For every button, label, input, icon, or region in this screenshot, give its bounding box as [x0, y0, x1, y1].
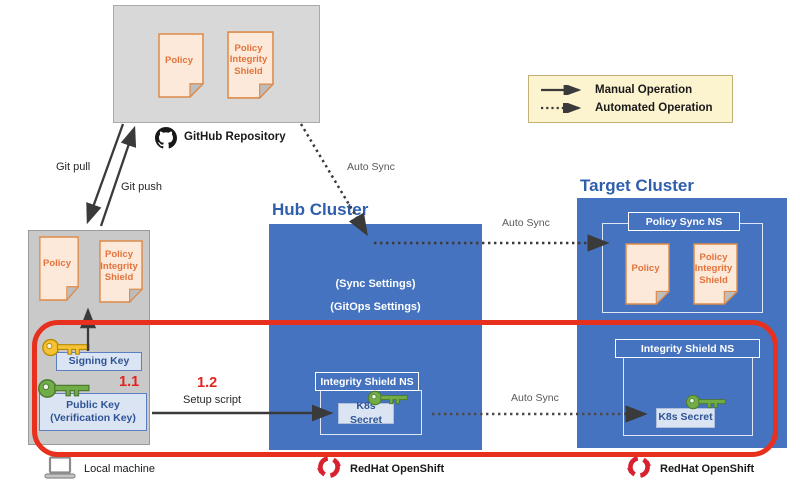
auto-sync-repo-hub-label: Auto Sync — [347, 161, 395, 173]
local-machine-box: Policy Policy Integrity Shield Signing K… — [28, 230, 150, 445]
legend-automated-row: Automated Operation — [539, 102, 722, 114]
auto-sync-secret-label: Auto Sync — [511, 392, 559, 404]
github-repo-box: Policy Policy Integrity Shield — [113, 5, 320, 123]
openshift-icon — [316, 454, 342, 480]
laptop-icon — [44, 456, 76, 482]
legend-automated-label: Automated Operation — [595, 102, 713, 114]
target-policy-document: Policy — [625, 243, 670, 305]
github-repo-caption: GitHub Repository — [184, 131, 286, 143]
target-ns-text: Integrity Shield NS — [641, 343, 734, 355]
policy-document-label: Policy — [39, 236, 75, 291]
hub-secret-key-icon — [367, 389, 409, 407]
target-integrity-shield-ns-label: Integrity Shield NS — [615, 339, 760, 358]
target-platform-caption: RedHat OpenShift — [660, 463, 754, 475]
legend-manual-label: Manual Operation — [595, 84, 692, 96]
solid-arrow-icon — [539, 85, 587, 95]
public-key-icon — [37, 377, 91, 400]
policy-document-label: Policy — [158, 33, 200, 88]
target-cluster-title: Target Cluster — [580, 176, 694, 196]
openshift-icon — [626, 454, 652, 480]
policy-integrity-shield-label: Policy Integrity Shield — [99, 240, 139, 293]
legend: Manual Operation Automated Operation — [528, 75, 733, 123]
target-cluster-box: Policy Sync NS Policy Policy Integrity S… — [577, 198, 787, 448]
git-push-arrow — [101, 129, 134, 226]
policy-document-label: Policy — [625, 243, 666, 295]
hub-cluster-title: Hub Cluster — [272, 200, 368, 220]
auto-sync-hub-target-label: Auto Sync — [502, 217, 550, 229]
diagram-canvas: Policy Policy Integrity Shield GitHub Re… — [0, 0, 800, 484]
local-machine-caption: Local machine — [84, 463, 155, 475]
sync-settings-note: (Sync Settings) — [269, 278, 482, 290]
hub-ns-text: Integrity Shield NS — [320, 376, 413, 388]
git-push-label: Git push — [121, 181, 162, 193]
git-pull-label: Git pull — [56, 161, 90, 173]
public-key-text-line2: (Verification Key) — [50, 412, 136, 425]
policy-document: Policy — [158, 33, 204, 98]
step-1-1-label: 1.1 — [119, 374, 139, 390]
github-icon — [155, 127, 177, 149]
hub-platform-caption: RedHat OpenShift — [350, 463, 444, 475]
target-k8s-secret: K8s Secret — [656, 408, 715, 428]
hub-cluster-box: (Sync Settings) (GitOps Settings) Integr… — [269, 224, 482, 450]
policy-document: Policy — [39, 236, 79, 301]
step-1-2-label: 1.2 — [197, 375, 217, 391]
policy-sync-ns-label: Policy Sync NS — [628, 212, 740, 231]
target-secret-key-icon — [685, 393, 727, 411]
target-k8s-secret-text: K8s Secret — [658, 411, 712, 424]
target-policy-integrity-shield-document: Policy Integrity Shield — [693, 243, 738, 305]
policy-integrity-shield-label: Policy Integrity Shield — [693, 243, 734, 295]
dotted-arrow-icon — [539, 103, 587, 113]
public-key-text-line1: Public Key — [66, 399, 120, 412]
policy-integrity-shield-label: Policy Integrity Shield — [227, 31, 270, 89]
git-pull-arrow — [88, 124, 123, 221]
setup-script-label: Setup script — [183, 394, 241, 406]
policy-integrity-shield-document: Policy Integrity Shield — [227, 31, 274, 99]
policy-sync-ns-text: Policy Sync NS — [646, 216, 722, 228]
signing-key-icon — [41, 337, 91, 358]
legend-manual-row: Manual Operation — [539, 84, 722, 96]
policy-integrity-shield-document: Policy Integrity Shield — [99, 240, 143, 303]
gitops-settings-note: (GitOps Settings) — [269, 301, 482, 313]
